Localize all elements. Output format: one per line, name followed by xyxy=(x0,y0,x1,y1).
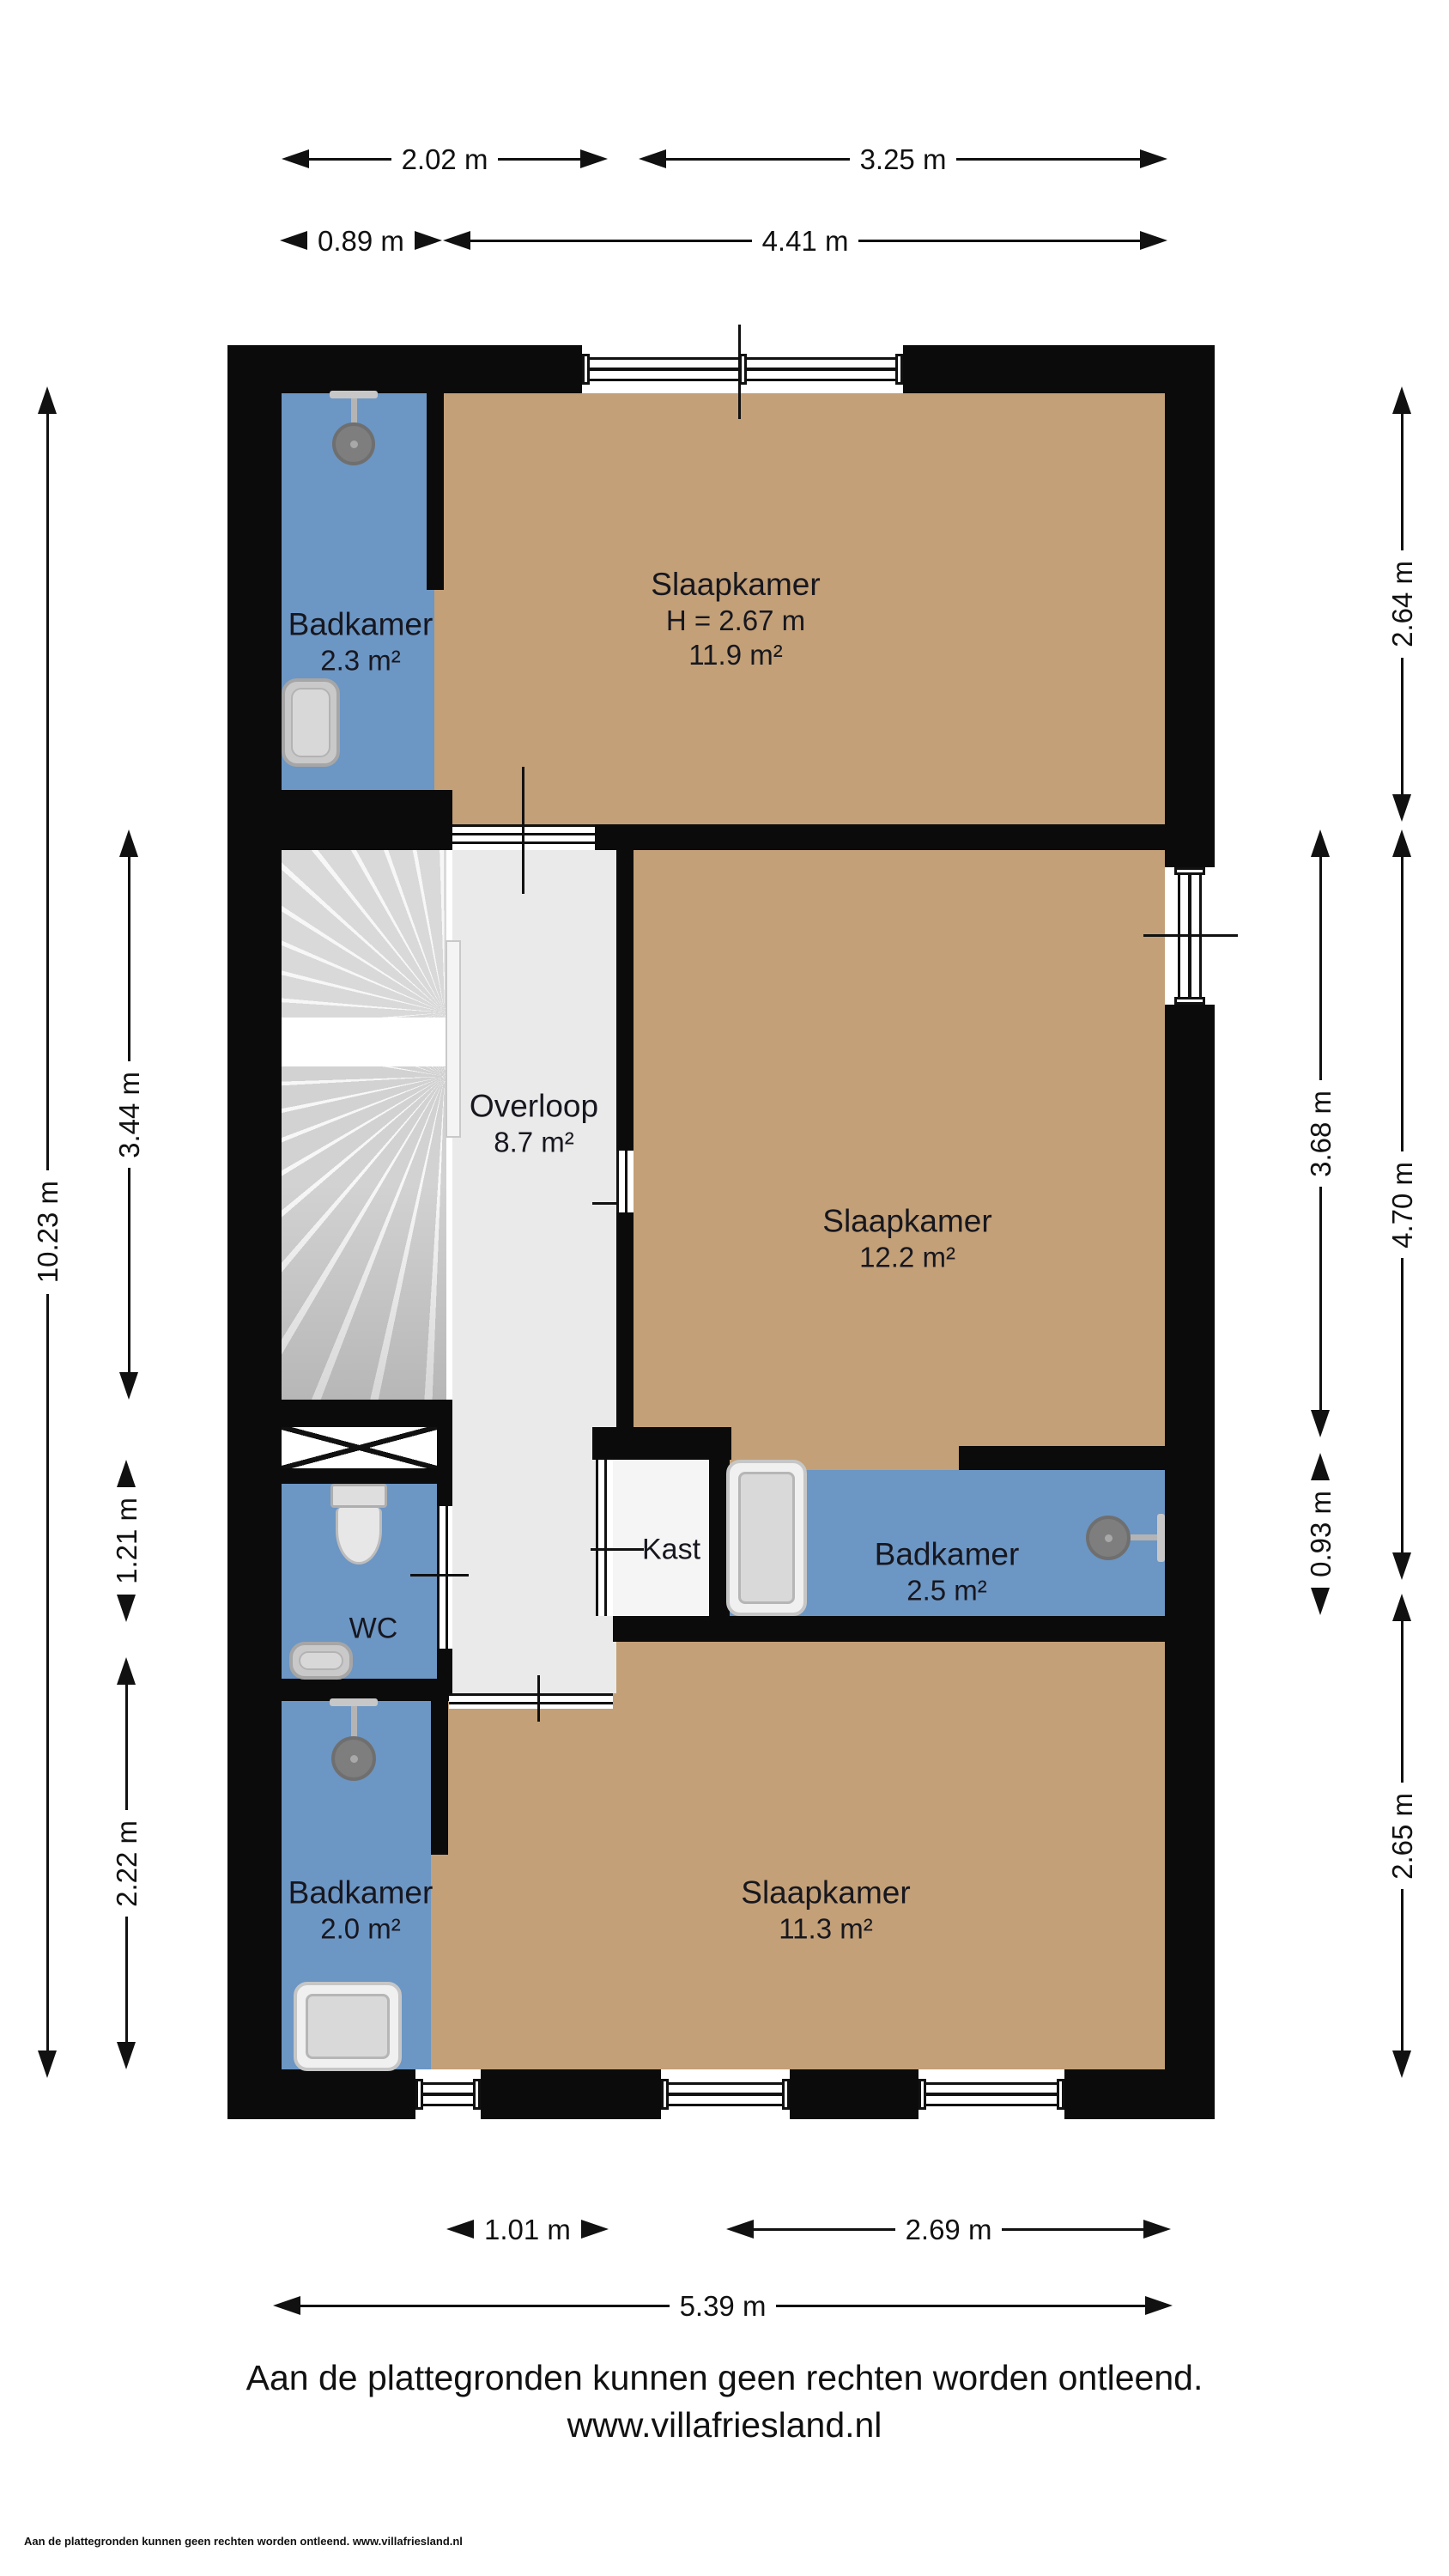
room-area: 2.0 m² xyxy=(288,1911,433,1946)
window-frame-cap xyxy=(473,2079,481,2110)
door-wc-icon xyxy=(437,1506,452,1649)
window-frame-cap xyxy=(782,2079,790,2110)
arrow-left-icon xyxy=(639,149,666,168)
room-name: Badkamer xyxy=(288,605,433,643)
dimension-line xyxy=(1401,1621,1404,1783)
floor-slaapkamer-right xyxy=(634,850,1165,1470)
dimension-label: 3.44 m xyxy=(115,1061,143,1169)
sink-icon xyxy=(282,678,340,767)
dimension-label: 2.69 m xyxy=(895,2215,1003,2244)
dimension-label: 3.68 m xyxy=(1307,1080,1335,1188)
room-name: Slaapkamer xyxy=(651,565,820,604)
room-label-kast: Kast xyxy=(642,1532,700,1567)
shower-head-icon xyxy=(331,1736,376,1781)
dimension-label: 2.02 m xyxy=(391,145,499,173)
shower-bar-icon xyxy=(330,1698,378,1706)
window-frame-cap xyxy=(582,354,590,385)
dimension-right-bottom: 2.65 m xyxy=(1385,1594,1419,2078)
wall-under-badkamer-top xyxy=(227,790,452,850)
dimension-line xyxy=(956,158,1140,161)
dimension-line xyxy=(858,240,1140,242)
bathtub-icon xyxy=(726,1460,807,1616)
dimension-label: 10.23 m xyxy=(33,1170,62,1293)
dimension-label: 2.64 m xyxy=(1388,550,1416,658)
room-label-slaapkamer-right: Slaapkamer 12.2 m² xyxy=(822,1201,991,1274)
wall-mid-bottom xyxy=(613,1616,1215,1642)
room-area: 2.3 m² xyxy=(288,643,433,677)
shower-arm-icon xyxy=(351,1701,357,1740)
shaft-cross-box xyxy=(282,1413,437,1484)
dimension-line xyxy=(46,414,49,1170)
stairs-landing xyxy=(282,1018,446,1066)
arrow-up-icon xyxy=(119,829,138,857)
room-name: Badkamer xyxy=(875,1534,1020,1573)
dimension-right-mid-inner: 3.68 m xyxy=(1303,829,1337,1437)
arrow-left-icon xyxy=(273,2296,300,2315)
shower-head-icon xyxy=(1086,1516,1131,1560)
dimension-line xyxy=(498,158,580,161)
window-frame-cap xyxy=(1057,2079,1064,2110)
footer-disclaimer: Aan de plattegronden kunnen geen rechten… xyxy=(0,2354,1449,2402)
arrow-up-icon xyxy=(1392,829,1411,857)
window-frame-cap xyxy=(415,2079,423,2110)
wall-right xyxy=(1165,345,1215,2119)
dimension-label: 3.25 m xyxy=(850,145,957,173)
toilet-tank-icon xyxy=(330,1484,387,1508)
door-leader-line xyxy=(410,1574,469,1577)
wall-slaapkamer-top-bottom xyxy=(595,824,1215,850)
dimension-label: 1.01 m xyxy=(474,2215,581,2244)
dimension-line xyxy=(128,1168,130,1372)
shower-bar-icon xyxy=(1157,1514,1165,1562)
room-name: Kast xyxy=(642,1532,700,1567)
window-bottom-left-icon xyxy=(415,2069,481,2119)
dimension-label: 5.39 m xyxy=(670,2292,777,2320)
room-label-badkamer-mid: Badkamer 2.5 m² xyxy=(875,1534,1020,1607)
arrow-down-icon xyxy=(1311,1588,1330,1615)
dimension-label: 1.21 m xyxy=(112,1487,141,1595)
dimension-line xyxy=(754,2228,895,2231)
window-frame-cap xyxy=(919,2079,926,2110)
dimension-left-stairs: 3.44 m xyxy=(112,829,146,1400)
arrow-right-icon xyxy=(581,2220,609,2239)
dimension-label: 0.93 m xyxy=(1307,1480,1335,1588)
room-name: Overloop xyxy=(470,1086,598,1125)
window-top-icon xyxy=(582,345,903,393)
window-bottom-right-icon xyxy=(919,2069,1064,2119)
dimension-line xyxy=(46,1294,49,2050)
dimension-line xyxy=(1401,414,1404,550)
bathtub-icon xyxy=(294,1982,402,2071)
room-label-slaapkamer-top: Slaapkamer H = 2.67 m 11.9 m² xyxy=(651,565,820,673)
arrow-right-icon xyxy=(1143,2220,1171,2239)
window-pane xyxy=(590,357,739,381)
dimension-right-top: 2.64 m xyxy=(1385,386,1419,822)
dimension-label: 2.22 m xyxy=(112,1810,141,1917)
room-area: 12.2 m² xyxy=(822,1240,991,1274)
room-name: Slaapkamer xyxy=(822,1201,991,1240)
arrow-down-icon xyxy=(38,2050,57,2078)
dimension-line xyxy=(470,240,752,242)
fineprint: Aan de plattegronden kunnen geen rechten… xyxy=(24,2535,463,2548)
dimension-line xyxy=(1401,1258,1404,1552)
window-frame-cap xyxy=(895,354,903,385)
room-area: 8.7 m² xyxy=(470,1125,598,1159)
door-leader-line xyxy=(592,1202,618,1205)
window-pane xyxy=(423,2082,473,2106)
wall-badkamer-top-partition xyxy=(427,393,444,590)
door-kast-icon xyxy=(596,1460,613,1616)
dimension-line xyxy=(1002,2228,1143,2231)
arrow-left-icon xyxy=(446,2220,474,2239)
room-area: 11.9 m² xyxy=(651,639,820,673)
room-label-wc: WC xyxy=(349,1611,398,1646)
wall-slaapkamer-right-left-lower xyxy=(616,1212,634,1446)
dimension-line xyxy=(300,2305,670,2307)
arrow-up-icon xyxy=(1311,1453,1330,1480)
arrow-right-icon xyxy=(415,231,442,250)
room-name: Badkamer xyxy=(288,1873,433,1911)
dimension-line xyxy=(1319,1187,1322,1410)
arrow-left-icon xyxy=(280,231,307,250)
window-pane xyxy=(926,2082,1057,2106)
room-area: 11.3 m² xyxy=(741,1911,910,1946)
dimension-line xyxy=(125,1685,128,1810)
stairs-railing xyxy=(446,940,461,1138)
dimension-left-bottom: 2.22 m xyxy=(109,1657,143,2069)
wall-badkamer-bottom-right xyxy=(431,1693,448,1855)
dimension-line xyxy=(125,1917,128,2042)
dimension-line xyxy=(776,2305,1145,2307)
door-overloop-slaapkamer-bottom-icon xyxy=(449,1693,613,1709)
dimension-left-wc: 1.21 m xyxy=(109,1460,143,1625)
dimension-right-small: 0.93 m xyxy=(1303,1453,1337,1580)
stairs-upper-flight xyxy=(282,850,446,1018)
sink-icon xyxy=(289,1642,353,1680)
arrow-up-icon xyxy=(1311,829,1330,857)
dimension-bottom-1-left: 1.01 m xyxy=(446,2212,615,2246)
dimension-left-outer: 10.23 m xyxy=(30,386,64,2078)
dimension-top-2-right: 4.41 m xyxy=(443,223,1167,258)
room-area: 2.5 m² xyxy=(875,1573,1020,1607)
arrow-up-icon xyxy=(38,386,57,414)
arrow-right-icon xyxy=(580,149,608,168)
arrow-right-icon xyxy=(1145,2296,1173,2315)
arrow-left-icon xyxy=(443,231,470,250)
arrow-down-icon xyxy=(117,2042,136,2069)
shower-head-icon xyxy=(332,422,375,465)
window-frame-cap xyxy=(661,2079,669,2110)
arrow-up-icon xyxy=(117,1460,136,1487)
dimension-right-mid-outer: 4.70 m xyxy=(1385,829,1419,1580)
dimension-line xyxy=(1401,1889,1404,2050)
wall-kast-top xyxy=(592,1427,731,1460)
dimension-line xyxy=(1319,857,1322,1080)
arrow-down-icon xyxy=(1311,1410,1330,1437)
room-label-badkamer-bottom: Badkamer 2.0 m² xyxy=(288,1873,433,1946)
arrow-left-icon xyxy=(282,149,309,168)
arrow-up-icon xyxy=(1392,1594,1411,1621)
arrow-down-icon xyxy=(1392,1552,1411,1580)
dimension-line xyxy=(1401,658,1404,794)
arrow-right-icon xyxy=(1140,231,1167,250)
window-frame-cap xyxy=(1174,867,1205,875)
dimension-label: 4.41 m xyxy=(752,227,859,255)
shower-bar-icon xyxy=(330,391,378,398)
room-label-overloop: Overloop 8.7 m² xyxy=(470,1086,598,1159)
room-name: Slaapkamer xyxy=(741,1873,910,1911)
door-pivot-line xyxy=(522,767,524,894)
wall-left xyxy=(227,345,282,2119)
window-bottom-middle-icon xyxy=(661,2069,790,2119)
dimension-top-1-left: 2.02 m xyxy=(282,142,608,176)
window-frame-cap xyxy=(1174,997,1205,1005)
dimension-line xyxy=(1401,857,1404,1151)
dimension-line xyxy=(309,158,391,161)
arrow-down-icon xyxy=(119,1372,138,1400)
dimension-top-1-right: 3.25 m xyxy=(639,142,1167,176)
room-label-slaapkamer-bottom: Slaapkamer 11.3 m² xyxy=(741,1873,910,1946)
door-leader-line xyxy=(591,1548,644,1551)
wall-badkamer-mid-top xyxy=(959,1446,1165,1470)
window-pane xyxy=(747,357,896,381)
dimension-label: 4.70 m xyxy=(1388,1151,1416,1259)
footer: Aan de plattegronden kunnen geen rechten… xyxy=(0,2354,1449,2450)
room-height: H = 2.67 m xyxy=(651,604,820,638)
dimension-top-2-left: 0.89 m xyxy=(280,223,426,258)
arrow-up-icon xyxy=(117,1657,136,1685)
room-label-badkamer-top: Badkamer 2.3 m² xyxy=(288,605,433,677)
wall-slaapkamer-right-left-upper xyxy=(616,850,634,1151)
arrow-down-icon xyxy=(117,1595,136,1622)
footer-website: www.villafriesland.nl xyxy=(0,2402,1449,2449)
arrow-up-icon xyxy=(1392,386,1411,414)
door-overloop-slaapkamer-right-icon xyxy=(616,1151,634,1212)
arrow-right-icon xyxy=(1140,149,1167,168)
room-name: WC xyxy=(349,1611,398,1646)
dimension-bottom-2: 5.39 m xyxy=(273,2288,1173,2323)
door-pivot-line xyxy=(537,1675,540,1722)
arrow-down-icon xyxy=(1392,794,1411,822)
dimension-line xyxy=(666,158,850,161)
dimension-line xyxy=(128,857,130,1061)
floor-overloop xyxy=(452,850,616,1693)
arrow-down-icon xyxy=(1392,2050,1411,2078)
stairs-lower-flight xyxy=(282,1066,446,1400)
window-pane xyxy=(669,2082,782,2106)
dimension-bottom-1-right: 2.69 m xyxy=(726,2212,1171,2246)
dimension-label: 2.65 m xyxy=(1388,1783,1416,1890)
window-center-tick xyxy=(1143,934,1238,937)
dimension-label: 0.89 m xyxy=(307,227,415,255)
window-center-tick xyxy=(738,325,741,419)
arrow-left-icon xyxy=(726,2220,754,2239)
